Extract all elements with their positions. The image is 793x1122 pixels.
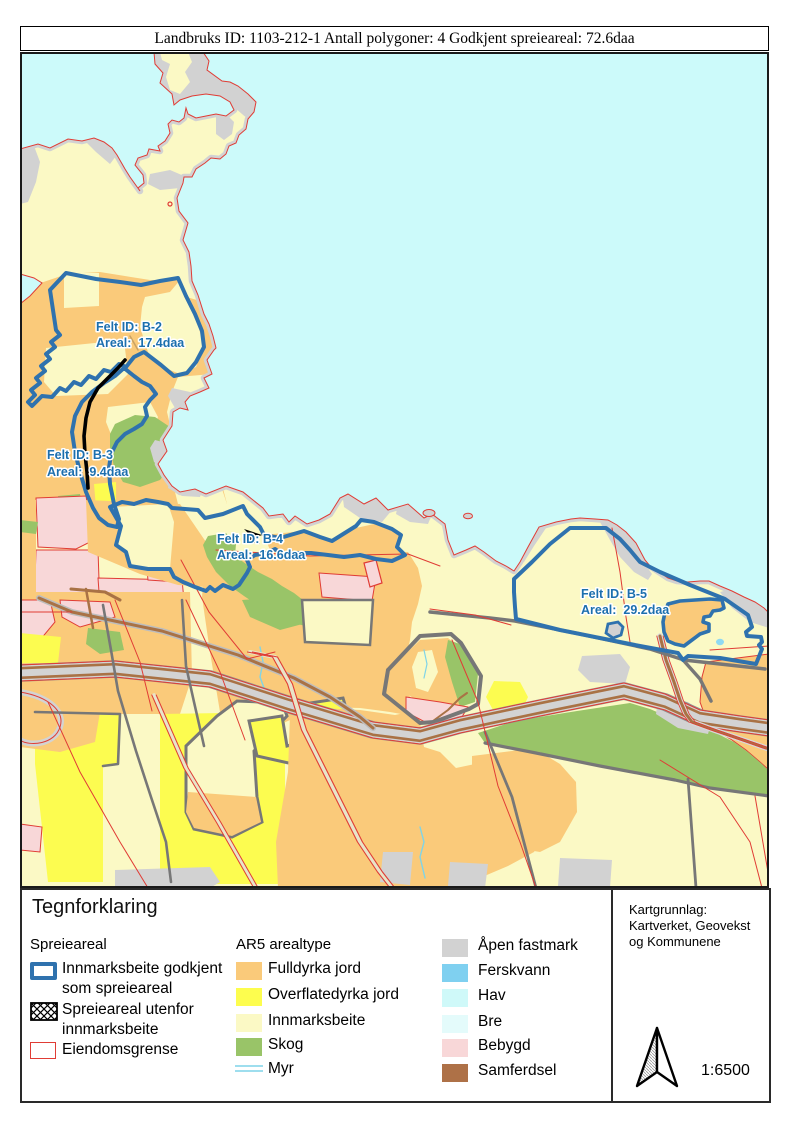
svg-text:Areal: 16.6daa: Areal: 16.6daa <box>217 548 306 562</box>
svg-text:Areal: 9.4daa: Areal: 9.4daa <box>47 465 129 479</box>
svg-text:Felt ID: B-2: Felt ID: B-2 <box>96 320 162 334</box>
svg-text:Felt ID: B-5: Felt ID: B-5 <box>581 587 647 601</box>
svg-text:Areal: 29.2daa: Areal: 29.2daa <box>581 603 670 617</box>
svg-text:Felt ID: B-4: Felt ID: B-4 <box>217 532 283 546</box>
svg-text:Areal: 17.4daa: Areal: 17.4daa <box>96 336 185 350</box>
svg-text:Felt ID: B-3: Felt ID: B-3 <box>47 448 113 462</box>
